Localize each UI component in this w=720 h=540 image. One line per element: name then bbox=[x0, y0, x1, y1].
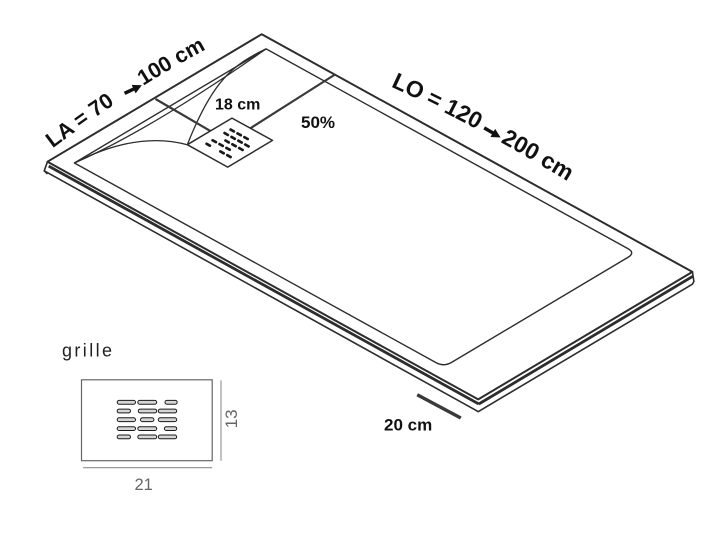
svg-text:18 cm: 18 cm bbox=[215, 97, 260, 114]
svg-text:20 cm: 20 cm bbox=[384, 416, 432, 435]
svg-text:grille: grille bbox=[62, 341, 114, 361]
svg-text:13: 13 bbox=[222, 409, 241, 428]
svg-text:21: 21 bbox=[135, 476, 153, 494]
svg-text:50%: 50% bbox=[301, 113, 335, 132]
